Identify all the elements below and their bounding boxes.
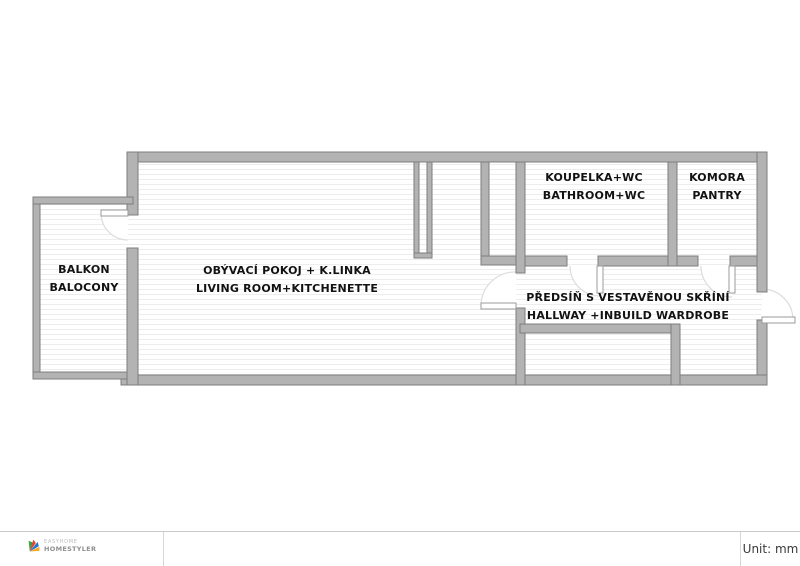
floor-plan-page: BALKON BALOCONY OBÝVACÍ POKOJ + K.LINKA … (0, 0, 800, 566)
wall-stub-cap (414, 253, 432, 258)
wall-bathroom-pantry-divider (668, 162, 677, 266)
wall-stub-left (414, 162, 419, 258)
wall-balcony-top (33, 197, 133, 204)
homestyler-logo-icon (28, 538, 40, 553)
room-label-living-room: OBÝVACÍ POKOJ + K.LINKA LIVING ROOM+KITC… (196, 262, 378, 297)
homestyler-logo-text: EASYHOME HOMESTYLER (44, 539, 96, 553)
room-label-living-room-en: LIVING ROOM+KITCHENETTE (196, 280, 378, 298)
entrance-door-leaf (762, 317, 795, 323)
hallway-door-leaf (481, 303, 516, 309)
room-label-pantry-en: PANTRY (689, 187, 745, 205)
room-label-balcony-cs: BALKON (49, 261, 118, 279)
wall-wardrobe-top (520, 324, 680, 333)
wall-right-upper (757, 152, 767, 292)
wall-balcony-divider-lower (127, 248, 138, 385)
wall-hallway-top-3 (730, 256, 757, 266)
wall-stub-right (427, 162, 432, 258)
room-label-bathroom-en: BATHROOM+WC (543, 187, 646, 205)
wall-hallway-left-upper (516, 162, 525, 273)
wall-hallway-left-lower (516, 308, 525, 385)
footer-divider-left (163, 532, 164, 566)
room-label-living-room-cs: OBÝVACÍ POKOJ + K.LINKA (196, 262, 378, 280)
floor-plan-canvas (0, 0, 800, 531)
floor-areas (33, 152, 767, 385)
room-label-bathroom: KOUPELKA+WC BATHROOM+WC (543, 169, 646, 204)
wall-balcony-bottom (33, 372, 127, 379)
wall-wardrobe-right (671, 324, 680, 385)
wall-bottom (121, 375, 767, 385)
homestyler-logo: EASYHOME HOMESTYLER (28, 538, 96, 553)
room-label-hallway-cs: PŘEDSÍŇ S VESTAVĚNOU SKŘÍNÍ (526, 289, 729, 307)
wall-hallway-top-1 (525, 256, 567, 266)
room-label-bathroom-cs: KOUPELKA+WC (543, 169, 646, 187)
room-label-hallway: PŘEDSÍŇ S VESTAVĚNOU SKŘÍNÍ HALLWAY +INB… (526, 289, 729, 324)
room-label-balcony-en: BALOCONY (49, 279, 118, 297)
room-label-pantry: KOMORA PANTRY (689, 169, 745, 204)
room-label-balcony: BALKON BALOCONY (49, 261, 118, 296)
balcony-door-leaf (101, 210, 128, 216)
pantry-door-leaf (729, 266, 735, 293)
footer-bar: EASYHOME HOMESTYLER Unit: mm (0, 531, 800, 566)
room-label-hallway-en: HALLWAY +INBUILD WARDROBE (526, 307, 729, 325)
wall-balcony-divider-upper (127, 152, 138, 215)
wall-shaft-left (481, 162, 489, 265)
unit-label: Unit: mm (741, 532, 800, 566)
wall-hallway-top-2 (598, 256, 698, 266)
room-label-pantry-cs: KOMORA (689, 169, 745, 187)
wall-top (127, 152, 767, 162)
logo-line2: HOMESTYLER (44, 545, 96, 553)
wall-balcony-left (33, 197, 40, 379)
